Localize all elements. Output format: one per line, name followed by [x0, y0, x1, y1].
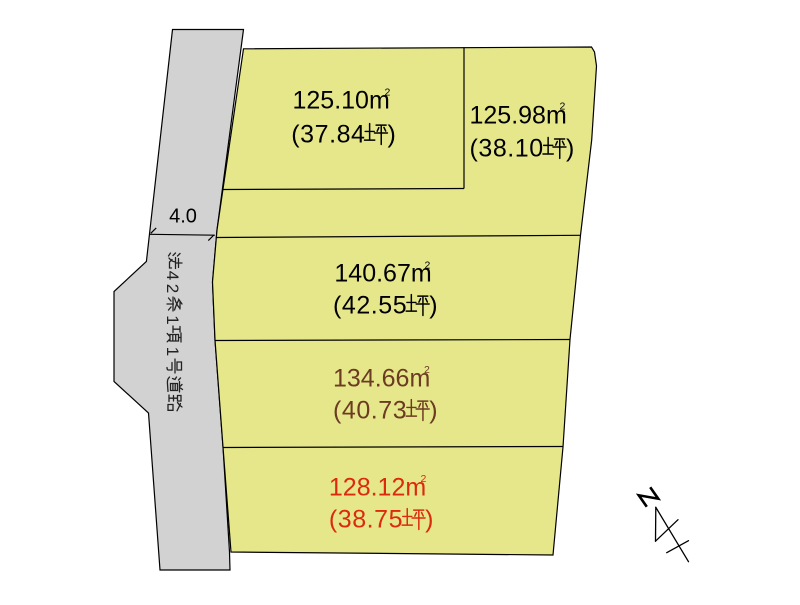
- svg-text:140.67m: 140.67m: [334, 259, 431, 287]
- svg-text:128.12m: 128.12m: [329, 473, 426, 501]
- svg-text:1: 1: [163, 315, 182, 324]
- svg-text:): ): [425, 506, 433, 534]
- svg-text:(38.75: (38.75: [329, 506, 403, 534]
- svg-text:): ): [429, 397, 437, 425]
- svg-text:125.98m: 125.98m: [470, 102, 567, 130]
- svg-text:4.0: 4.0: [169, 206, 197, 228]
- svg-text:(38.10: (38.10: [470, 134, 544, 162]
- svg-text:): ): [388, 121, 396, 149]
- svg-text:): ): [429, 292, 437, 320]
- svg-text:): ): [566, 134, 574, 162]
- svg-text:2: 2: [425, 260, 431, 272]
- svg-text:2: 2: [163, 284, 182, 293]
- svg-text:(40.73: (40.73: [333, 397, 407, 425]
- svg-text:1: 1: [163, 347, 182, 356]
- svg-text:125.10m: 125.10m: [293, 87, 390, 115]
- svg-text:(42.55: (42.55: [333, 292, 407, 320]
- svg-text:4: 4: [163, 271, 182, 280]
- svg-text:2: 2: [424, 364, 430, 376]
- svg-text:2: 2: [385, 87, 391, 99]
- svg-text:2: 2: [560, 101, 566, 113]
- svg-text:134.66m: 134.66m: [333, 365, 430, 393]
- svg-text:2: 2: [421, 473, 427, 485]
- svg-text:(37.84: (37.84: [291, 121, 365, 149]
